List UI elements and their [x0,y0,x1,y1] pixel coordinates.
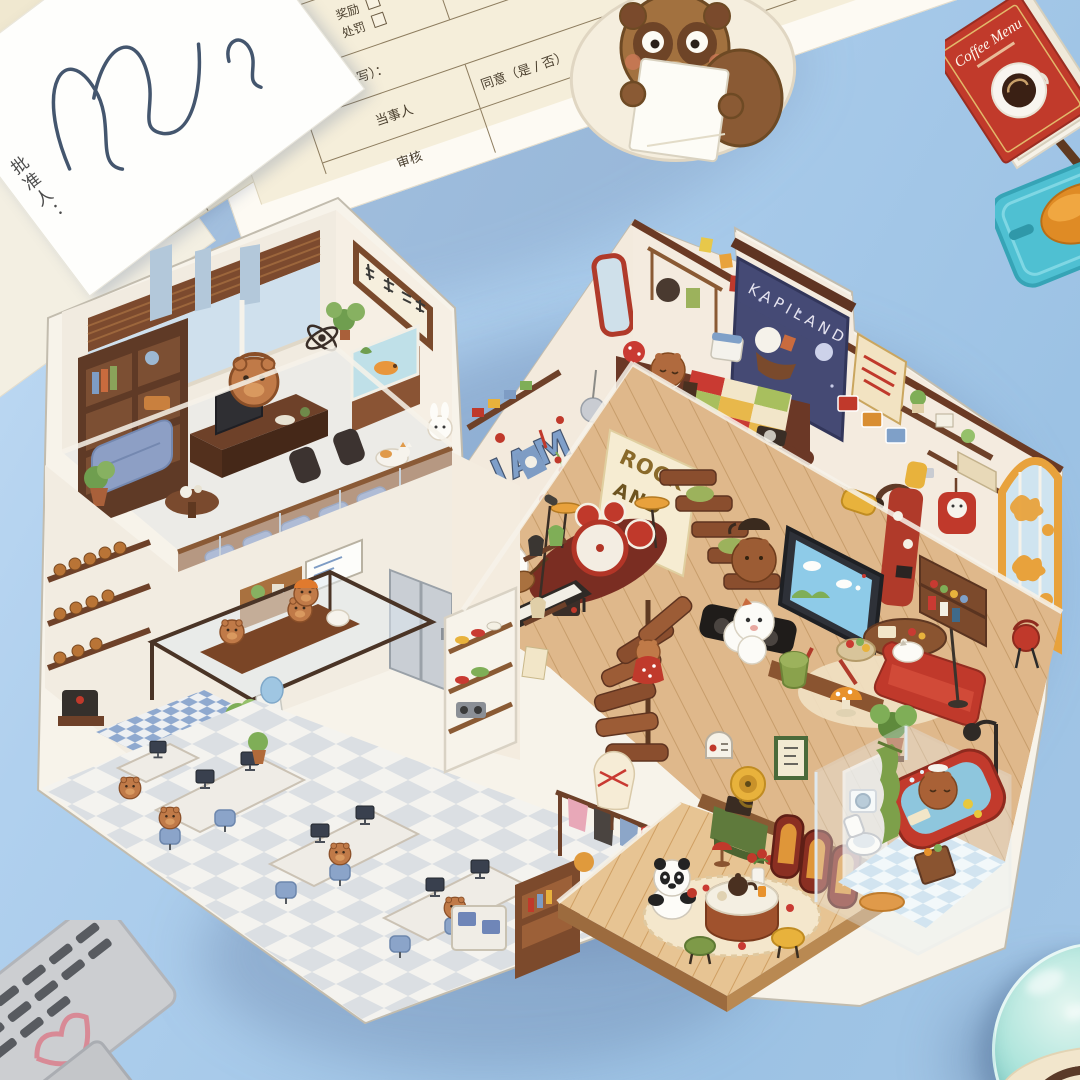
sofa-cat [893,642,923,662]
hat-box [574,852,594,872]
snack-basket [837,638,875,661]
arch-radio [706,732,732,758]
black-bag [528,535,544,556]
bath-mat [860,893,904,911]
polka-pillow [623,341,645,363]
green-bucket [780,652,808,688]
cream-bag [530,597,546,618]
held-note-paper [629,58,729,161]
boss-capybara [230,358,278,406]
juice-cup [758,886,766,897]
photo-scene: 姓 请假事 要求请 日期: 年 姓名 事由: 奖励 处罚 处理 [0,0,1080,1080]
shoe-shelf [445,588,516,772]
green-bag [548,525,564,546]
worker-capybara-1 [159,807,181,829]
bedside-cooler [710,332,743,362]
coffee-machine [58,690,104,726]
worker-capybara-2 [329,843,351,865]
pillar-poster [522,647,548,680]
grey-miniatures [0,920,210,1080]
sticker-arc [1026,1058,1080,1080]
delivery-capybara [294,579,318,606]
bear-sticker [555,0,815,166]
meeting-capybara-1 [220,620,244,644]
moon [815,343,833,361]
climbing-capybara [632,640,664,684]
capybara-dollhouse-card: JAM [0,0,1080,1080]
wall-art-frame [776,738,806,778]
worker-capybara-4 [119,777,141,799]
tissue-box [878,626,896,638]
rubber-duck [963,799,973,809]
bone-hairpin [928,764,948,772]
meeting-cat [327,610,349,626]
bread-basket [995,158,1080,298]
